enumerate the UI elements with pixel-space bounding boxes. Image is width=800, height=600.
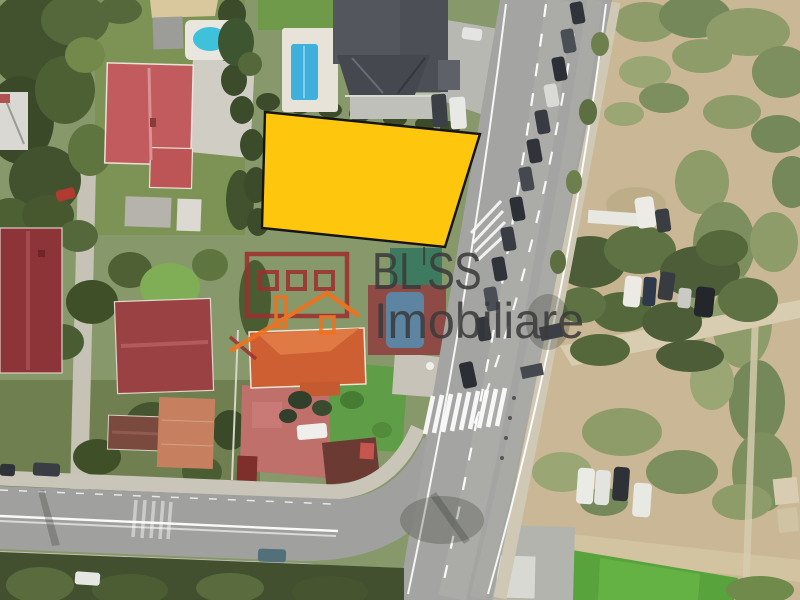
covered-pool xyxy=(386,292,424,348)
white-van xyxy=(296,423,327,441)
real-estate-listing-photo: BLISS Imobiliare xyxy=(0,0,800,600)
aerial-satellite-scene xyxy=(0,0,800,600)
house-far-left-white xyxy=(0,92,28,150)
green-court xyxy=(390,248,442,288)
house-left-darkred xyxy=(0,228,62,373)
gray-shed xyxy=(152,16,183,49)
house-maroon-mid xyxy=(114,298,213,393)
highlighted-parcel xyxy=(262,112,480,247)
